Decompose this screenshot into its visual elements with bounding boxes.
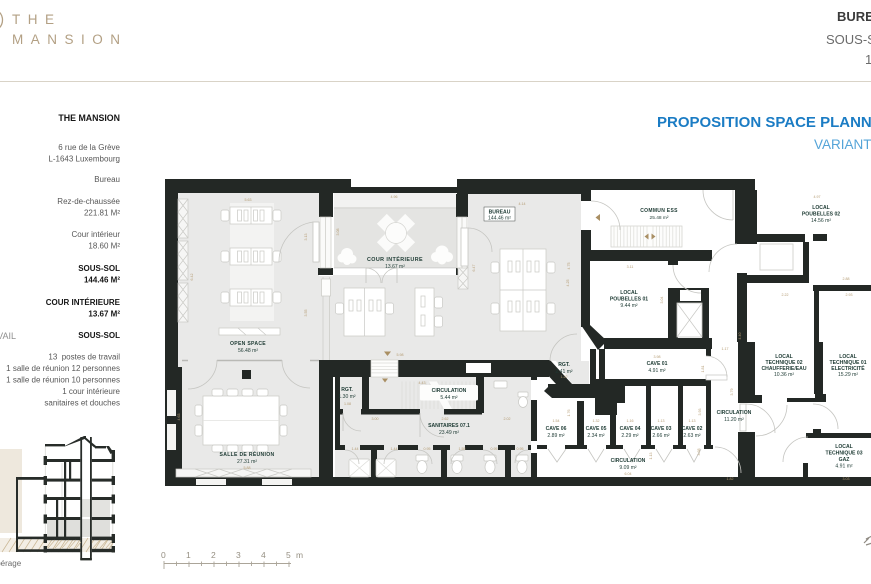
svg-text:SANITAIRES 07.1: SANITAIRES 07.1 [428, 423, 470, 429]
svg-text:1 salle de réunion 10 personne: 1 salle de réunion 10 personnes [6, 376, 120, 385]
svg-text:Bureau: Bureau [94, 175, 120, 184]
svg-text:CIRCULATION: CIRCULATION [717, 410, 752, 416]
svg-text:9.44 m²: 9.44 m² [620, 303, 638, 309]
svg-text:144.46 m²: 144.46 m² [488, 216, 511, 222]
svg-text:3.55: 3.55 [304, 310, 308, 317]
svg-text:0: 0 [161, 550, 166, 560]
svg-text:COUR INTÉRIEURE: COUR INTÉRIEURE [367, 255, 423, 263]
svg-text:LOCAL: LOCAL [812, 205, 830, 211]
svg-text:SOUS-SOL: SOUS-SOL [78, 264, 120, 273]
svg-text:2.93: 2.93 [846, 293, 853, 297]
svg-text:RGT.: RGT. [341, 387, 353, 393]
svg-text:1.16: 1.16 [627, 419, 634, 423]
svg-text:THE: THE [12, 12, 62, 27]
svg-text:THE MANSION: THE MANSION [58, 113, 120, 123]
svg-text:VAIL: VAIL [0, 331, 16, 341]
svg-text:2.29 m²: 2.29 m² [621, 433, 639, 439]
svg-text:1.17: 1.17 [722, 347, 729, 351]
svg-text:SALLE DE RÉUNION: SALLE DE RÉUNION [220, 450, 275, 458]
svg-text:14.56 m²: 14.56 m² [811, 218, 831, 224]
svg-text:4.96: 4.96 [391, 195, 398, 199]
svg-text:1.81: 1.81 [701, 366, 705, 373]
svg-text:23.49 m²: 23.49 m² [439, 430, 459, 436]
svg-text:POUBELLES 02: POUBELLES 02 [802, 212, 840, 218]
svg-text:COUR INTÉRIEURE: COUR INTÉRIEURE [46, 298, 121, 307]
svg-text:10.36 m²: 10.36 m² [774, 372, 794, 378]
svg-text:4.25: 4.25 [566, 280, 570, 287]
svg-text:1: 1 [186, 550, 191, 560]
svg-text:m: m [296, 550, 303, 560]
svg-text:2.63 m²: 2.63 m² [683, 433, 701, 439]
svg-text:POUBELLES 01: POUBELLES 01 [610, 297, 648, 303]
svg-text:CAVE 03: CAVE 03 [651, 426, 672, 432]
svg-text:4.91 m²: 4.91 m² [835, 464, 853, 470]
svg-text:2.89 m²: 2.89 m² [547, 433, 565, 439]
svg-text:5.98: 5.98 [397, 353, 404, 357]
svg-text:SOUS-SOL: SOUS-SOL [826, 32, 871, 47]
svg-text:11.20 m²: 11.20 m² [724, 417, 744, 423]
svg-text:4.63: 4.63 [177, 414, 181, 421]
svg-text:3.00: 3.00 [372, 417, 379, 421]
svg-text:5.88: 5.88 [244, 466, 251, 470]
svg-text:1 cour intérieure: 1 cour intérieure [62, 387, 120, 396]
svg-text:6.47: 6.47 [472, 265, 476, 272]
svg-text:1.32: 1.32 [593, 419, 600, 423]
svg-text:3.98: 3.98 [654, 355, 661, 359]
svg-text:6.04: 6.04 [625, 472, 632, 476]
svg-text:LOCAL: LOCAL [620, 290, 638, 296]
svg-text:13.67 m²: 13.67 m² [385, 264, 405, 270]
svg-text:18.60 M²: 18.60 M² [88, 242, 120, 251]
svg-text:1.13: 1.13 [658, 419, 665, 423]
svg-text:3.04: 3.04 [660, 297, 664, 304]
svg-text:5: 5 [286, 550, 291, 560]
svg-text:1.22: 1.22 [561, 375, 568, 379]
svg-text:4.43: 4.43 [419, 381, 426, 385]
svg-text:4.91 m²: 4.91 m² [648, 368, 666, 374]
svg-text:3.13: 3.13 [304, 234, 308, 241]
svg-text:25.48 m²: 25.48 m² [650, 215, 669, 221]
svg-text:4.97: 4.97 [814, 195, 821, 199]
svg-text:3.93: 3.93 [698, 409, 702, 416]
svg-text:144.46: 144.46 [865, 52, 871, 67]
svg-text:1.55: 1.55 [459, 447, 466, 451]
svg-text:1.76: 1.76 [567, 410, 571, 417]
svg-text:Cour intérieur: Cour intérieur [72, 230, 121, 239]
svg-text:2.66 m²: 2.66 m² [652, 433, 670, 439]
svg-text:CAVE 02: CAVE 02 [682, 426, 703, 432]
svg-text:3.08: 3.08 [336, 229, 340, 236]
svg-text:1.30 m²: 1.30 m² [338, 394, 356, 400]
svg-text:OPEN SPACE: OPEN SPACE [230, 341, 266, 347]
svg-text:TECHNIQUE 03: TECHNIQUE 03 [825, 451, 862, 457]
svg-text:CIRCULATION: CIRCULATION [432, 388, 467, 394]
svg-text:4: 4 [261, 550, 266, 560]
svg-text:1.08: 1.08 [344, 402, 351, 406]
svg-text:27.31 m²: 27.31 m² [237, 459, 257, 465]
svg-text:2.88: 2.88 [843, 277, 850, 281]
svg-text:CAVE 04: CAVE 04 [620, 426, 641, 432]
svg-text:5.63: 5.63 [245, 198, 252, 202]
svg-text:6 rue de la Grève: 6 rue de la Grève [58, 143, 120, 152]
svg-text:2.22: 2.22 [782, 293, 789, 297]
svg-text:1.44: 1.44 [391, 447, 398, 451]
svg-text:sanitaires et douches: sanitaires et douches [44, 399, 120, 408]
svg-text:1.54: 1.54 [553, 419, 560, 423]
svg-text:0.95: 0.95 [424, 447, 431, 451]
svg-text:1 salle de réunion 12 personne: 1 salle de réunion 12 personnes [6, 364, 120, 373]
svg-text:3.11: 3.11 [627, 265, 634, 269]
svg-text:RGT.: RGT. [558, 362, 570, 368]
svg-text:ELECTRICITÉ: ELECTRICITÉ [831, 364, 865, 372]
svg-text:9.09 m²: 9.09 m² [619, 465, 637, 471]
svg-text:3.03: 3.03 [843, 477, 850, 481]
svg-text:144.46 M²: 144.46 M² [84, 276, 120, 285]
svg-text:2: 2 [211, 550, 216, 560]
svg-text:CAVE 01: CAVE 01 [647, 361, 668, 367]
svg-text:15.29 m²: 15.29 m² [838, 372, 858, 378]
svg-text:2.34 m²: 2.34 m² [587, 433, 605, 439]
svg-text:4.75: 4.75 [567, 263, 571, 270]
svg-text:PROPOSITION SPACE PLANNING: PROPOSITION SPACE PLANNING [657, 114, 871, 131]
svg-text:Repérage: Repérage [0, 559, 22, 568]
svg-text:221.81 M²: 221.81 M² [84, 209, 120, 218]
svg-text:LOCAL: LOCAL [835, 444, 853, 450]
svg-text:0.95: 0.95 [491, 447, 498, 451]
svg-text:1.13: 1.13 [689, 419, 696, 423]
svg-text:CAVE 05: CAVE 05 [586, 426, 607, 432]
svg-text:1.13: 1.13 [649, 453, 653, 460]
svg-text:MANSION: MANSION [12, 32, 128, 47]
svg-text:13.67 M²: 13.67 M² [88, 310, 120, 319]
svg-text:BUREAUX: BUREAUX [837, 9, 871, 24]
svg-text:COMMUN ESS: COMMUN ESS [640, 208, 678, 214]
svg-text:6.42: 6.42 [190, 274, 194, 281]
svg-text:56.48 m²: 56.48 m² [238, 348, 258, 354]
svg-text:0.95: 0.95 [517, 447, 524, 451]
svg-text:3: 3 [236, 550, 241, 560]
svg-text:4.40: 4.40 [738, 333, 742, 340]
svg-text:1.44: 1.44 [352, 447, 359, 451]
svg-text:3.68: 3.68 [697, 449, 701, 456]
svg-text:VARIANTE: VARIANTE [814, 137, 871, 152]
svg-text:GAZ: GAZ [839, 457, 850, 463]
svg-text:13 postes de travail: 13 postes de travail [48, 353, 120, 362]
svg-text:CAVE 06: CAVE 06 [546, 426, 567, 432]
svg-text:5.44 m²: 5.44 m² [440, 395, 458, 401]
svg-text:1.82: 1.82 [727, 477, 734, 481]
svg-text:2.02: 2.02 [504, 417, 511, 421]
svg-text:SOUS-SOL: SOUS-SOL [78, 331, 120, 340]
svg-text:CIRCULATION: CIRCULATION [611, 458, 646, 464]
svg-text:4.14: 4.14 [519, 202, 526, 206]
svg-text:2.62: 2.62 [442, 417, 449, 421]
svg-text:L-1643 Luxembourg: L-1643 Luxembourg [48, 155, 120, 164]
svg-text:Rez-de-chaussée: Rez-de-chaussée [57, 197, 120, 206]
svg-text:3.79: 3.79 [730, 389, 734, 396]
